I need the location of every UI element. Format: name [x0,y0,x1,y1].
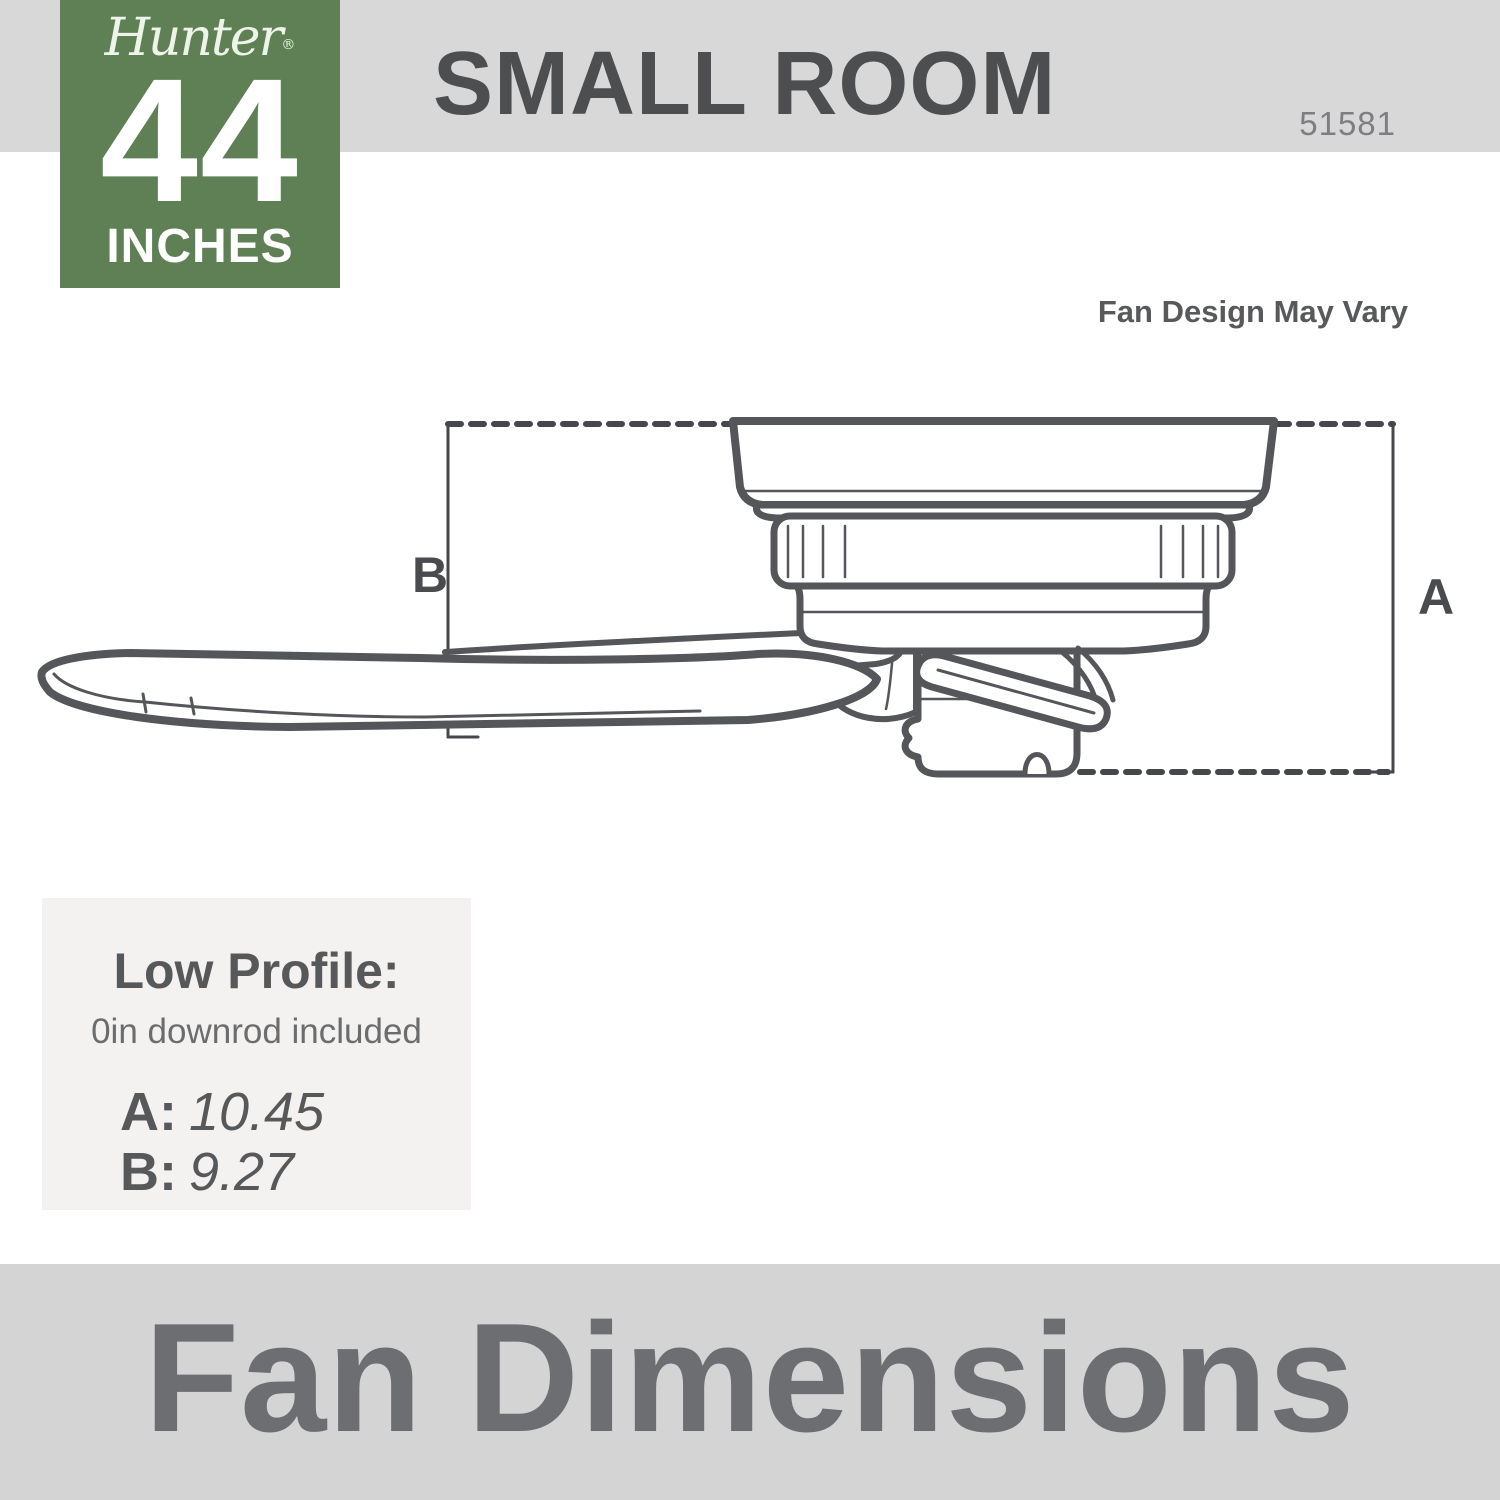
motor-body [774,516,1232,586]
spec-heading: Low Profile: [42,942,471,1000]
spec-value-a: 10.45 [189,1082,324,1142]
spec-subheading: 0in downrod included [42,1012,471,1052]
footer-bar: Fan Dimensions [0,1264,1500,1500]
switch-housing-bump [1025,755,1049,775]
spec-label-b: B: [120,1142,177,1202]
spec-row-a: A:10.45 [120,1082,471,1142]
motor-lower-band [796,586,1210,651]
spec-box: Low Profile: 0in downrod included A:10.4… [42,898,471,1210]
canopy [733,421,1274,505]
dimension-label-a: A [1418,569,1454,625]
spec-rows: A:10.45 B:9.27 [42,1082,471,1203]
fan-drawing [41,421,1274,774]
infographic-page: SMALL ROOM 51581 Hunter® 44 INCHES Fan D… [0,0,1500,1500]
dimension-label-b: B [412,547,448,603]
spec-row-b: B:9.27 [120,1142,471,1202]
footer-title: Fan Dimensions [144,1289,1355,1467]
spec-value-b: 9.27 [189,1142,294,1202]
spec-label-a: A: [120,1082,177,1142]
